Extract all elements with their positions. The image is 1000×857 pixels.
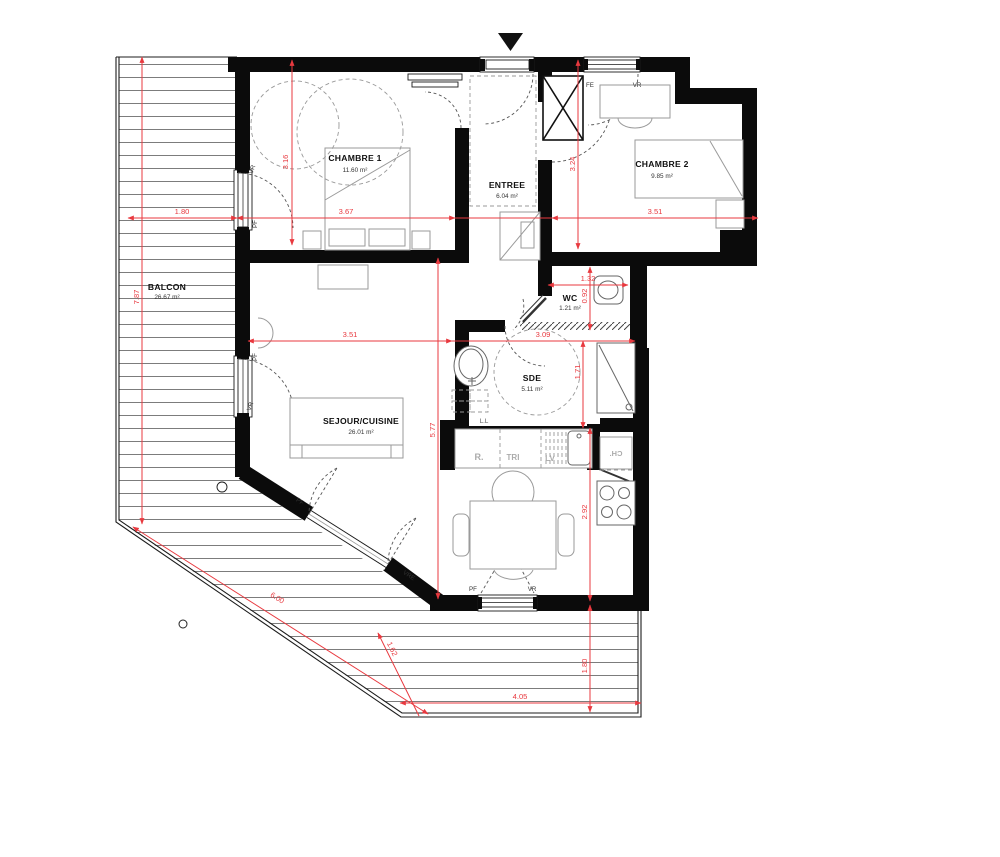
opening-label-pf-sejour: PF (252, 353, 259, 361)
entree-closet (500, 212, 540, 260)
room-label-chambre1: CHAMBRE 1 (328, 153, 381, 163)
dining-table (453, 471, 574, 579)
dim-balcon-bottom-width: 4.05 (513, 692, 528, 701)
opening-label-pf-bottom: PF (469, 586, 477, 593)
dim-entree-height: 3.24 (568, 157, 577, 172)
dim-sde-width: 3.09 (536, 330, 551, 339)
shower (597, 343, 635, 413)
room-label-wc: WC (563, 293, 578, 303)
dim-wc-height: 0.92 (580, 289, 589, 304)
turning-circle-sde (494, 329, 580, 415)
washbasin (454, 346, 488, 386)
opening-label-pf-chambre1: PF (252, 220, 259, 228)
dim-cuisine-height: 2.92 (580, 505, 589, 520)
technical-shaft (543, 76, 583, 140)
opening-label-fe: FE (586, 82, 594, 89)
fixture-label-fridge: R. (475, 452, 484, 462)
room-label-sejour: SEJOUR/CUISINE (323, 416, 399, 426)
opening-label-vr-top: VR (633, 82, 642, 89)
sideboard (318, 265, 368, 289)
room-label-balcon: BALCON (148, 282, 186, 292)
ventilation-grille (520, 322, 630, 330)
fixture-label-lv: LV (545, 454, 555, 463)
sliding-door-chambre1 (408, 74, 462, 128)
column-post (217, 482, 227, 492)
fixture-label-ll: L.L (480, 418, 489, 425)
entry-arrow-icon (498, 33, 523, 51)
fixture-label-tri: TRI (507, 453, 520, 462)
room-area-chambre1: 11.60 m² (343, 167, 368, 174)
dim-sde-height: 1.71 (573, 365, 582, 380)
entry-door (480, 57, 534, 124)
room-area-wc: 1.21 m² (559, 305, 581, 312)
desk-chambre2 (600, 85, 670, 128)
cooktop (597, 481, 635, 525)
radiator (258, 318, 273, 348)
window-chambre1 (234, 168, 293, 232)
opening-label-vr-bottom: VR (528, 586, 537, 593)
room-area-entree: 6.04 m² (496, 193, 518, 200)
fixture-label-ch: CH. (610, 449, 623, 458)
room-label-sde: SDE (523, 373, 541, 383)
bed-chambre1 (303, 148, 430, 250)
dim-chambre1-width: 3.67 (339, 207, 354, 216)
dim-balcon-bottom-depth: 1.80 (580, 659, 589, 674)
dim-sejour-width: 3.51 (343, 330, 358, 339)
sofa (290, 398, 403, 458)
toilet (594, 276, 623, 304)
floor-plan-page: CHAMBRE 1 11.60 m² CHAMBRE 2 9.85 m² ENT… (0, 0, 1000, 857)
boiler (599, 437, 633, 482)
dim-balcon-top-width: 1.80 (175, 207, 190, 216)
dim-sejour-height: 5.77 (428, 423, 437, 438)
kitchen-counter (455, 429, 592, 468)
room-area-sde: 5.11 m² (521, 386, 542, 393)
room-label-chambre2: CHAMBRE 2 (635, 159, 688, 169)
dim-chambre2-width: 3.51 (648, 207, 663, 216)
dim-chambre1-height: 3.16 (281, 155, 290, 170)
dim-balcon-left-height: 7.87 (132, 290, 141, 305)
window-sejour-left (234, 354, 294, 418)
floor-plan-svg: CHAMBRE 1 11.60 m² CHAMBRE 2 9.85 m² ENT… (0, 0, 1000, 857)
room-area-sejour: 26.01 m² (348, 429, 373, 436)
room-area-balcon: 26.67 m² (154, 294, 179, 301)
dim-wc-width: 1.32 (581, 274, 596, 283)
room-label-entree: ENTREE (489, 180, 525, 190)
room-area-chambre2: 9.85 m² (651, 173, 673, 180)
